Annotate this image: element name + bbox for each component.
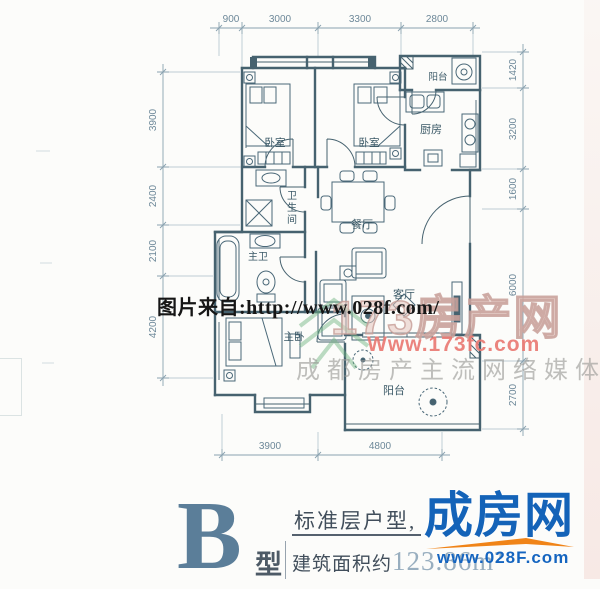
dim-label: 2400: [148, 184, 159, 207]
dim-label: 2800: [426, 14, 449, 25]
dim-label: 2700: [508, 383, 519, 406]
room-label-bedroom-2: 卧室: [359, 136, 380, 149]
dim-label: 3300: [349, 14, 372, 25]
wardrobe-icon: [258, 152, 290, 164]
dim-label: 3200: [508, 117, 519, 140]
footer-headline: 标准层户型,: [294, 505, 416, 535]
brand-logo-text: 成房网: [424, 492, 574, 541]
room-label-bathroom: 卫生间: [285, 190, 297, 226]
watermark-photo-credit: 图片来自:http://www.028f.com/: [157, 291, 439, 320]
unit-type-letter: B: [177, 498, 242, 574]
door-arc-bedroom-2: [327, 139, 355, 167]
washing-machine-icon: [452, 58, 476, 84]
kitchen-cabinet-icon: [424, 150, 476, 167]
bay-seat-icon: [264, 398, 304, 408]
watermark-portal-slogan: 成都房产主流网络媒体: [296, 350, 600, 385]
room-label-balcony-top: 阳台: [428, 71, 447, 83]
nightstand-icon: [224, 370, 235, 381]
wardrobe-icon: [356, 152, 386, 164]
dim-label: 3000: [269, 14, 292, 25]
door-arc-entry: [422, 196, 470, 244]
dim-label: 3900: [259, 441, 282, 452]
dim-label: 3900: [148, 108, 159, 131]
door-arc-kitchen: [377, 97, 405, 125]
floorplan-page: { "plan": { "rooms": [ {"key": "bedroom-…: [0, 0, 600, 579]
room-label-master-bath: 主卫: [248, 251, 268, 263]
brand-url: www.028F.com: [437, 548, 569, 568]
basin-icon: [250, 234, 280, 248]
dim-label: 2100: [148, 239, 159, 262]
room-label-kitchen: 厨房: [420, 123, 442, 136]
room-label-dining: 餐厅: [351, 217, 373, 231]
dim-label: 1600: [508, 177, 519, 200]
dim-label: 1420: [508, 58, 519, 81]
footer-separator-line: [285, 541, 286, 579]
unit-type-suffix: 型: [255, 543, 282, 582]
dim-label: 900: [223, 14, 240, 25]
sink-icon: [256, 170, 286, 186]
room-label-balcony-bottom: 阳台: [383, 383, 405, 397]
room-label-bedroom-1: 卧室: [265, 136, 286, 149]
bed-icon: [226, 318, 282, 366]
shower-icon: [246, 200, 272, 226]
footer-underline: [292, 534, 421, 536]
door-arc-master-bath: [280, 257, 305, 282]
dim-label: 4800: [369, 441, 392, 452]
wall-piers: [250, 57, 375, 68]
area-label: 建筑面积约: [292, 554, 392, 575]
